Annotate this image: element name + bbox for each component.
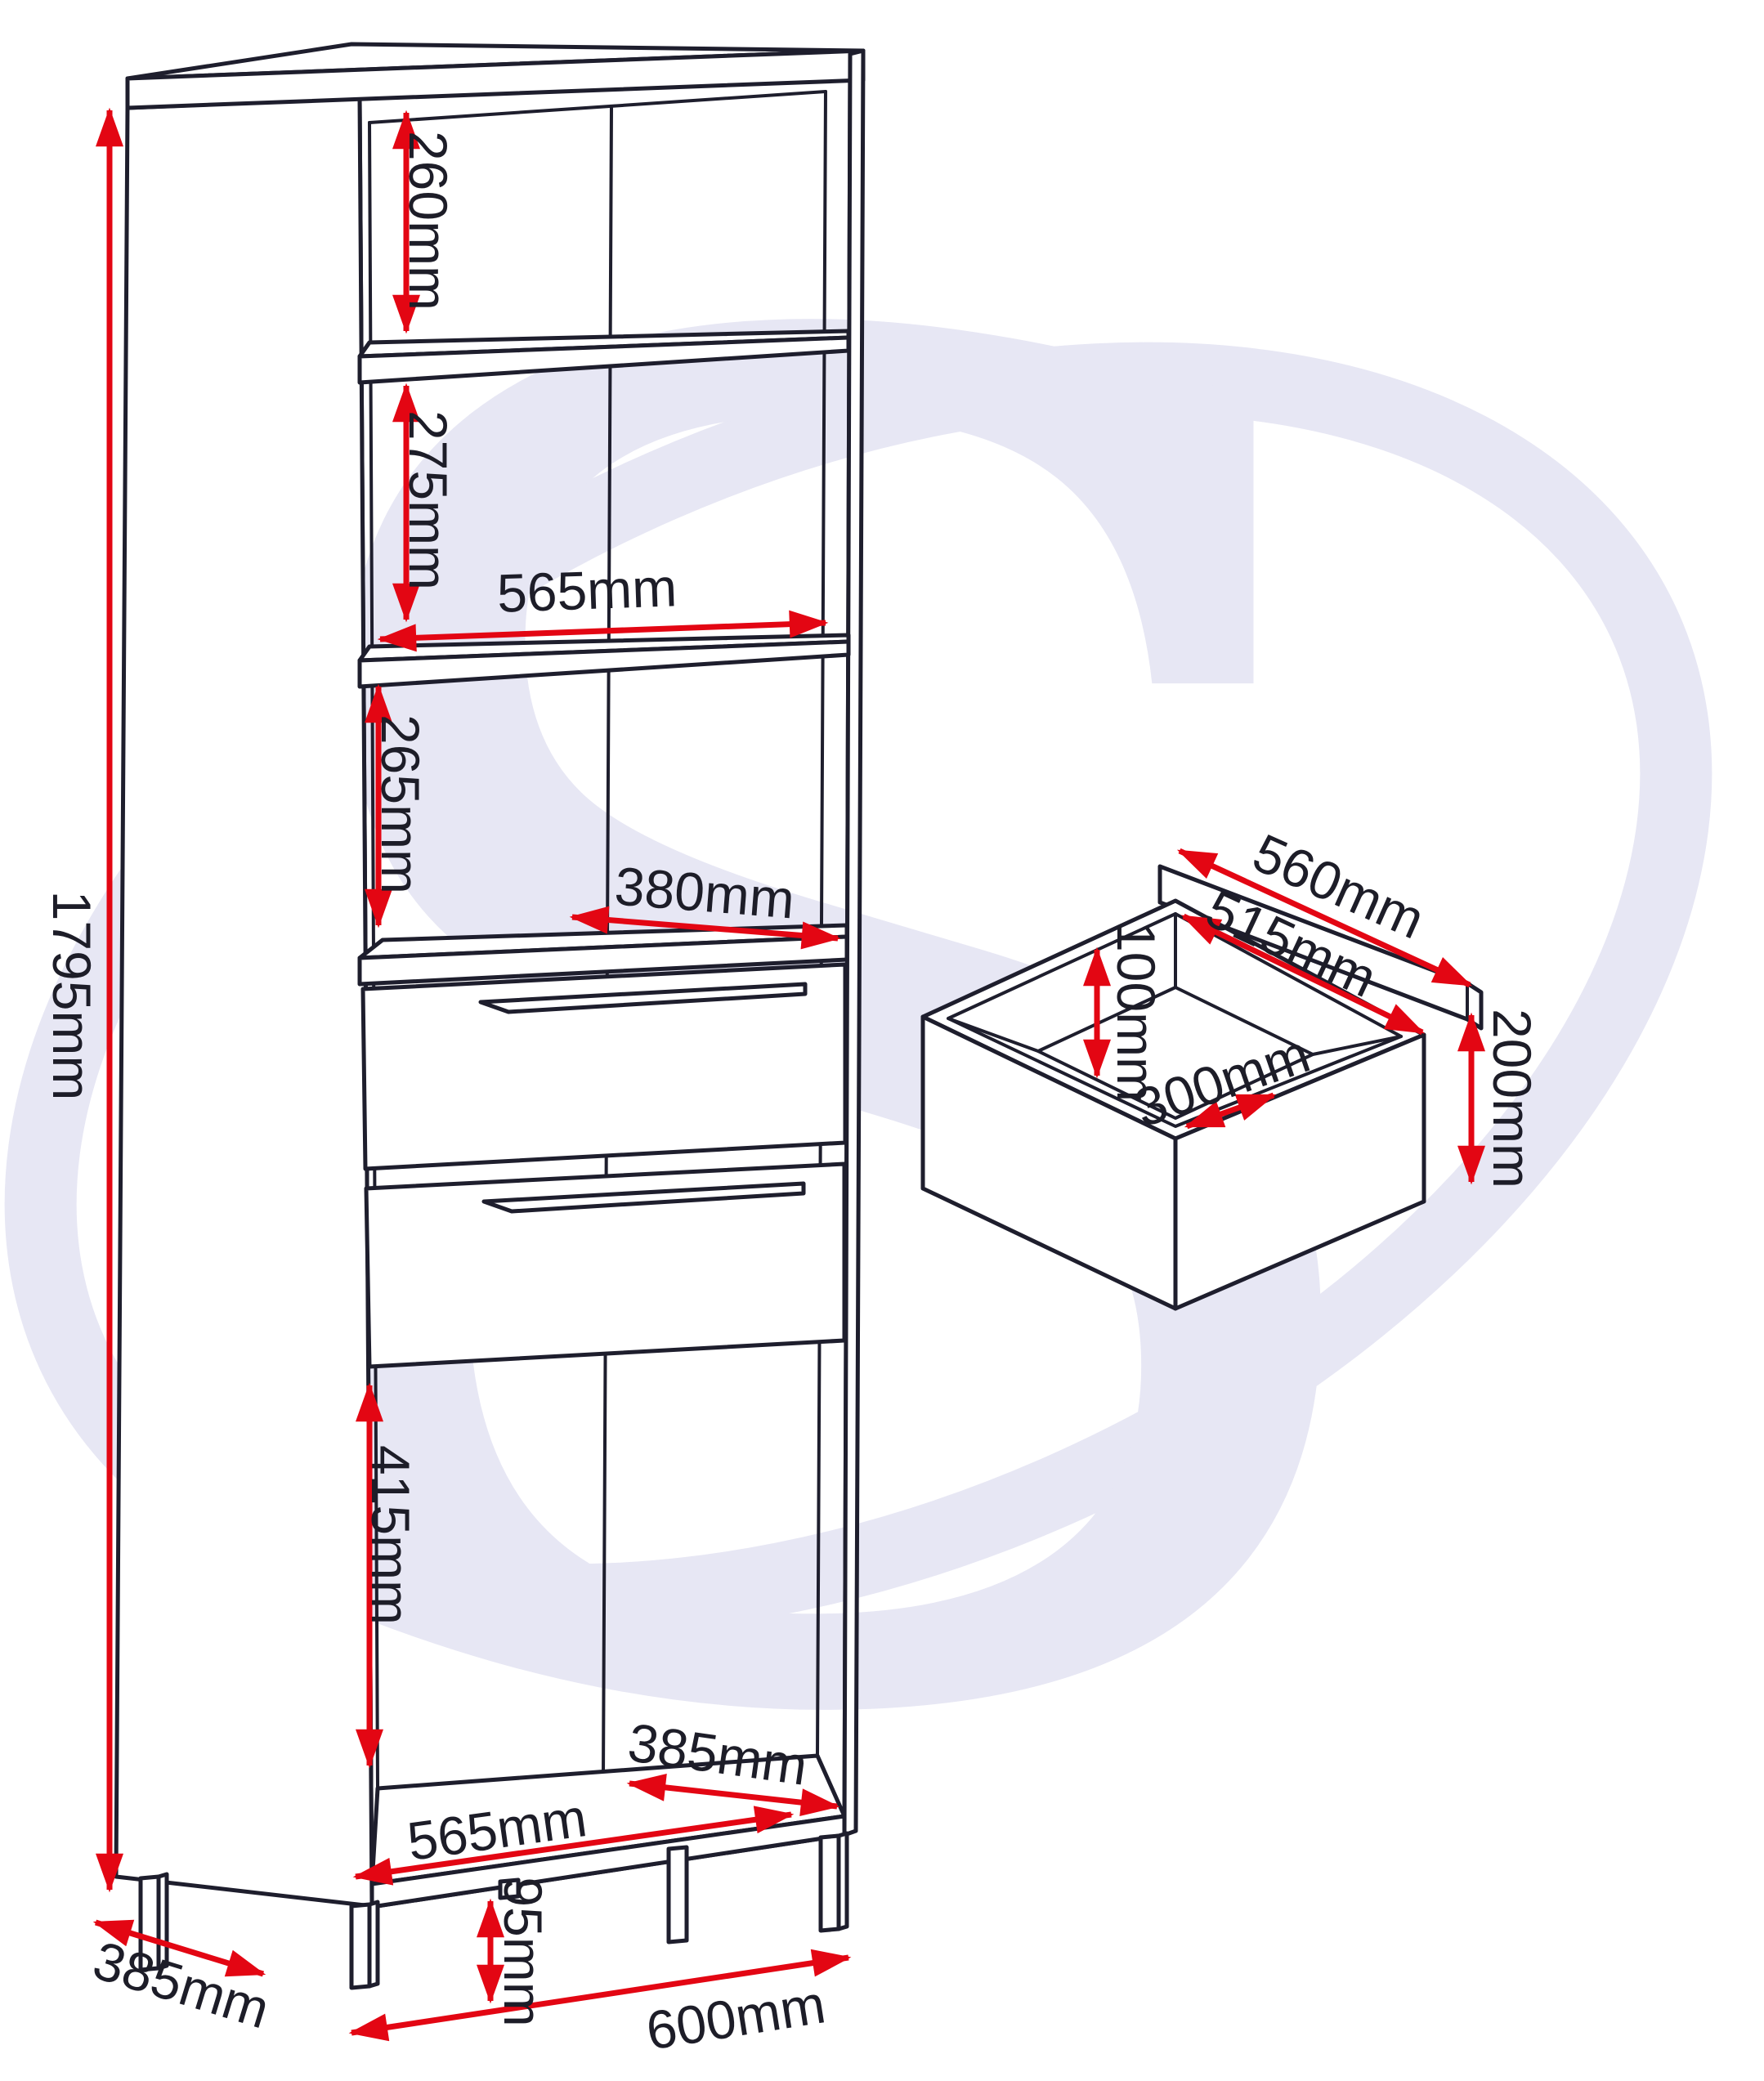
dim-label-interior-width: 565mm [496, 557, 678, 624]
dim-label-top-shelf-space: 260mm [398, 131, 459, 311]
leg-front-right [821, 1836, 839, 1931]
dim-label-second-shelf-space: 275mm [398, 410, 459, 590]
leg-front-right-side [839, 1833, 847, 1929]
dim-label-leg-height: 95mm [493, 1877, 553, 2026]
dim-label-bottom-space-height: 415mm [360, 1445, 421, 1625]
diagram-canvas: S [0, 0, 1764, 2081]
dim-label-front-height: 200mm [1482, 1009, 1542, 1188]
dim-label-third-shelf-space: 265mm [370, 714, 431, 894]
leg-front-left [351, 1904, 369, 1988]
leg-front-left-side [369, 1902, 378, 1986]
leg-back-right [669, 1847, 687, 1942]
dim-label-total-height: 1795mm [42, 891, 102, 1101]
cabinet-side-panel [116, 98, 372, 1906]
cabinet-diagram: 1795mm 260mm 275mm 565mm 265mm 380mm 415… [42, 44, 863, 2061]
